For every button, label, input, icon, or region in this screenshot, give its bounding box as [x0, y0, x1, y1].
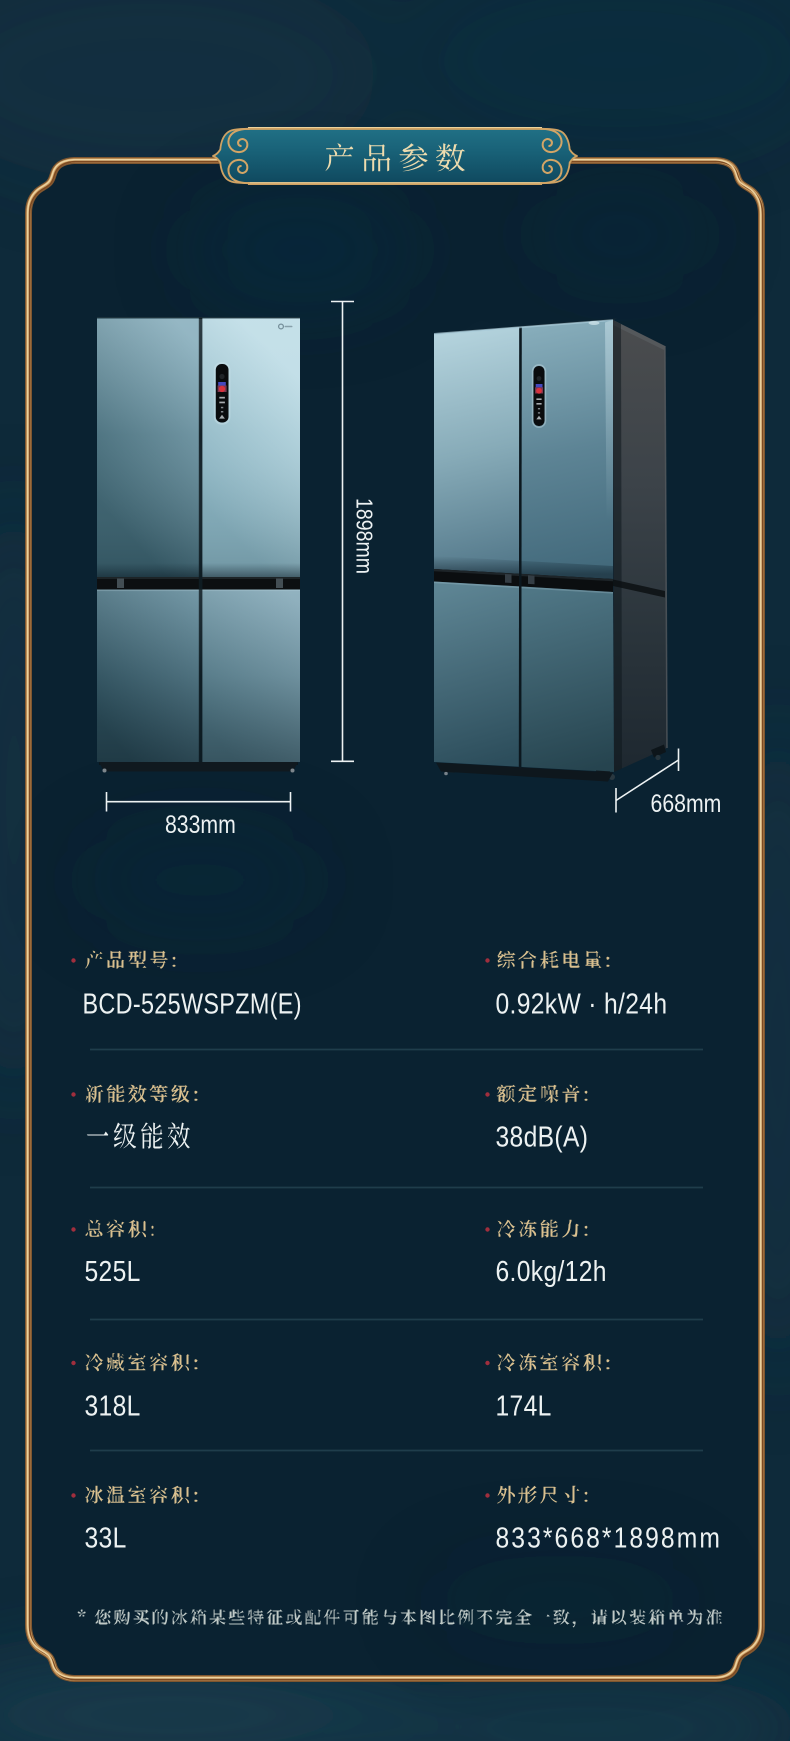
svg-text:525L: 525L — [85, 1255, 141, 1287]
svg-text:6.0kg/12h: 6.0kg/12h — [496, 1255, 607, 1287]
svg-text:668mm: 668mm — [651, 789, 722, 817]
svg-text:833*668*1898mm: 833*668*1898mm — [496, 1522, 722, 1554]
svg-text:174L: 174L — [496, 1390, 552, 1422]
svg-text:318L: 318L — [85, 1390, 141, 1422]
svg-text:33L: 33L — [85, 1522, 127, 1554]
svg-text:833mm: 833mm — [165, 810, 236, 838]
svg-text:BCD-525WSPZM(E): BCD-525WSPZM(E) — [83, 987, 302, 1020]
svg-text:38dB(A): 38dB(A) — [496, 1121, 589, 1153]
svg-text:1898mm: 1898mm — [351, 498, 377, 574]
svg-text:0.92kW · h/24h: 0.92kW · h/24h — [496, 988, 668, 1020]
